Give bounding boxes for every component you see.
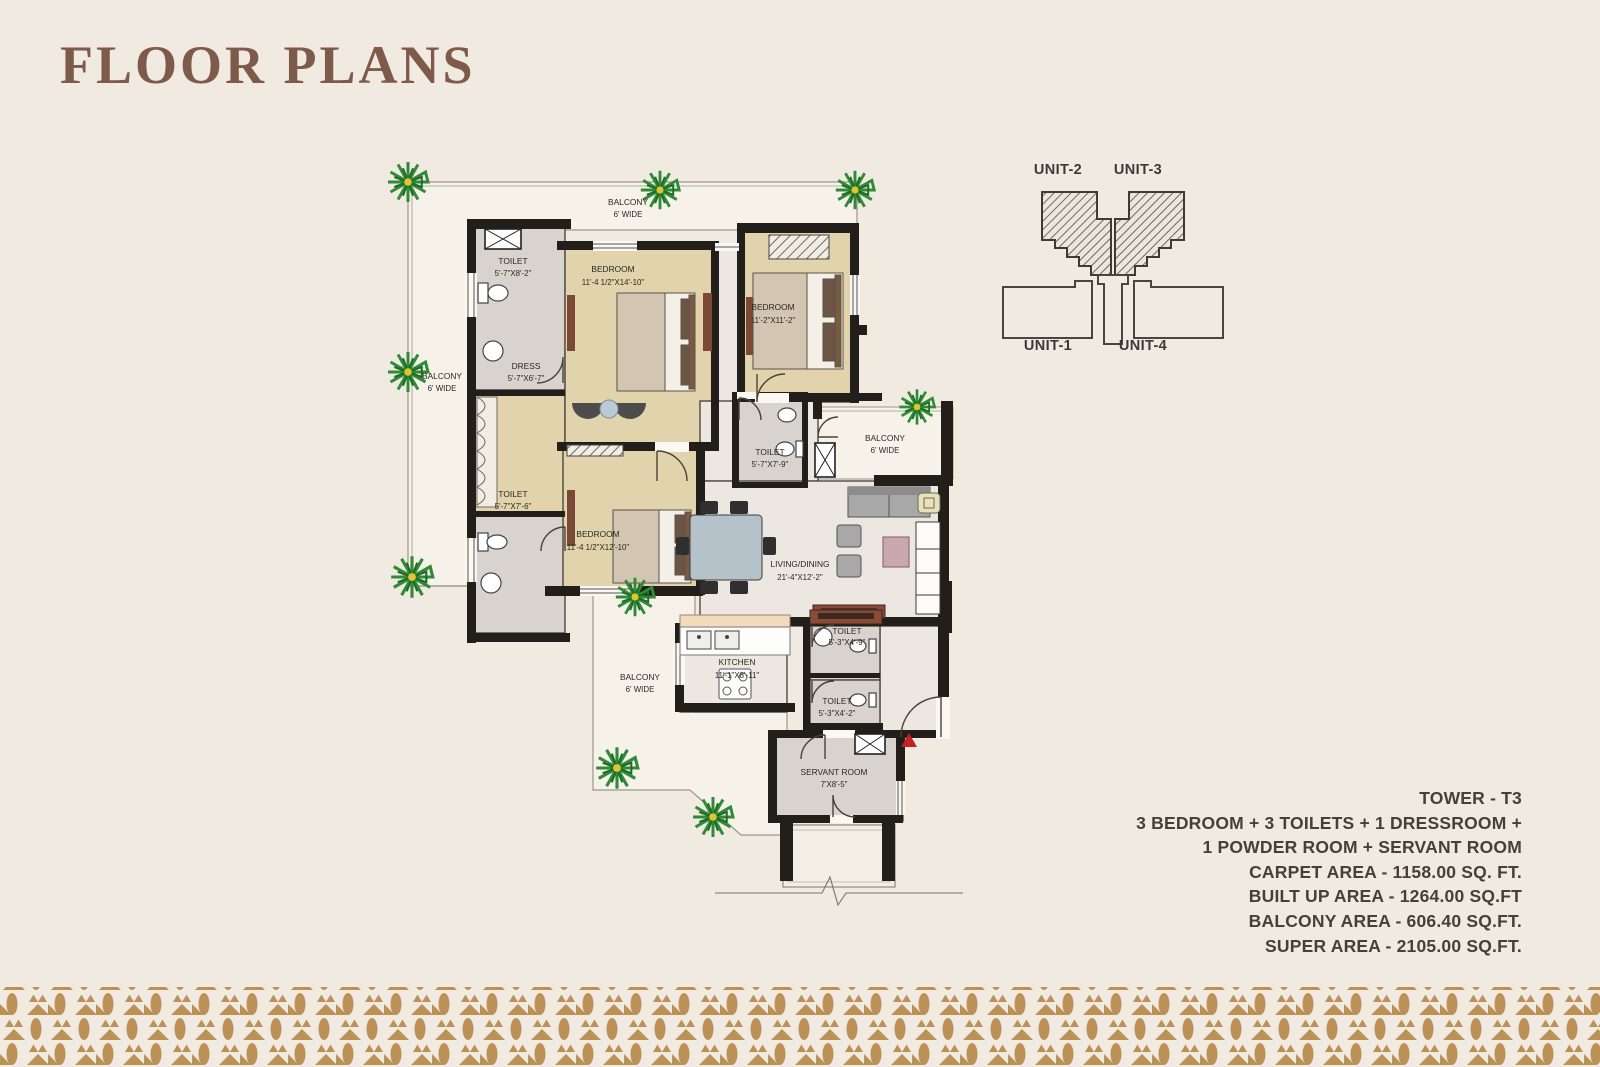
page-title: FLOOR PLANS: [60, 34, 476, 96]
spec-balcony-area: BALCONY AREA - 606.40 SQ.FT.: [1136, 909, 1522, 934]
floor-plan-page: FLOOR PLANS: [0, 0, 1600, 1067]
spec-carpet-area: CARPET AREA - 1158.00 SQ. FT.: [1136, 860, 1522, 885]
svg-text:6' WIDE: 6' WIDE: [614, 210, 643, 219]
svg-text:6' WIDE: 6' WIDE: [626, 685, 655, 694]
balcony-label-top: BALCONY: [608, 197, 648, 207]
highlighted-units: [1042, 192, 1184, 275]
room-label-toilet-2: TOILET: [498, 489, 527, 499]
balcony-label-left: BALCONY: [422, 371, 462, 381]
svg-text:11'-4 1/2"X12'-10": 11'-4 1/2"X12'-10": [567, 543, 630, 552]
room-label-kitchen: KITCHEN: [719, 657, 756, 667]
balcony-label-right: BALCONY: [865, 433, 905, 443]
unit-key-svg: [995, 158, 1225, 358]
svg-text:7'X8'-5": 7'X8'-5": [821, 780, 848, 789]
unit-label-3: UNIT-3: [1098, 162, 1178, 178]
unit-key-diagram: UNIT-2 UNIT-3 UNIT-1 UNIT-4: [995, 158, 1225, 358]
floor-plan-drawing: BALCONY 6' WIDE BALCONY 6' WIDE BALCONY …: [385, 145, 965, 945]
svg-text:5'-3"X4'-9": 5'-3"X4'-9": [829, 638, 866, 647]
room-label-servant-room: SERVANT ROOM: [800, 767, 867, 777]
svg-text:11'-4 1/2"X14'-10": 11'-4 1/2"X14'-10": [582, 278, 645, 287]
room-label-bedroom-3: BEDROOM: [576, 529, 619, 539]
spec-tower: TOWER - T3: [1136, 786, 1522, 811]
unit-label-2: UNIT-2: [1018, 162, 1098, 178]
unit-specifications: TOWER - T3 3 BEDROOM + 3 TOILETS + 1 DRE…: [1136, 786, 1522, 958]
room-label-bedroom-1: BEDROOM: [591, 264, 634, 274]
svg-text:5'-7"X6'-7": 5'-7"X6'-7": [508, 374, 545, 383]
unit-label-4: UNIT-4: [1103, 338, 1183, 354]
spec-built-up-area: BUILT UP AREA - 1264.00 SQ.FT: [1136, 884, 1522, 909]
svg-text:11'-2"X11'-2": 11'-2"X11'-2": [751, 316, 795, 325]
room-label-toilet-4: TOILET: [832, 626, 861, 636]
svg-text:5'-7"X7'-6": 5'-7"X7'-6": [495, 502, 532, 511]
svg-text:5'-7"X7'-9": 5'-7"X7'-9": [752, 460, 789, 469]
spec-config-1: 3 BEDROOM + 3 TOILETS + 1 DRESSROOM +: [1136, 811, 1522, 836]
svg-text:6' WIDE: 6' WIDE: [428, 384, 457, 393]
svg-text:5'-3"X4'-2": 5'-3"X4'-2": [819, 709, 856, 718]
outline-units: [1003, 275, 1223, 344]
unit-label-1: UNIT-1: [1008, 338, 1088, 354]
room-label-toilet-3: TOILET: [755, 447, 784, 457]
room-label-toilet-1: TOILET: [498, 256, 527, 266]
room-label-living-dining: LIVING/DINING: [770, 559, 829, 569]
room-label-toilet-5: TOILET: [822, 696, 851, 706]
room-label-bedroom-2: BEDROOM: [751, 302, 794, 312]
spec-super-area: SUPER AREA - 2105.00 SQ.FT.: [1136, 934, 1522, 959]
svg-text:11'-1"X8'-11": 11'-1"X8'-11": [715, 671, 759, 680]
svg-text:21'-4"X12'-2": 21'-4"X12'-2": [777, 573, 823, 582]
spec-config-2: 1 POWDER ROOM + SERVANT ROOM: [1136, 835, 1522, 860]
svg-text:6' WIDE: 6' WIDE: [871, 446, 900, 455]
svg-text:5'-7"X8'-2": 5'-7"X8'-2": [495, 269, 532, 278]
floor-plan-svg: BALCONY 6' WIDE BALCONY 6' WIDE BALCONY …: [385, 145, 965, 945]
bed: [617, 293, 695, 391]
room-label-dress: DRESS: [512, 361, 541, 371]
balcony-label-bottom: BALCONY: [620, 672, 660, 682]
decorative-border-pattern: [0, 987, 1600, 1067]
